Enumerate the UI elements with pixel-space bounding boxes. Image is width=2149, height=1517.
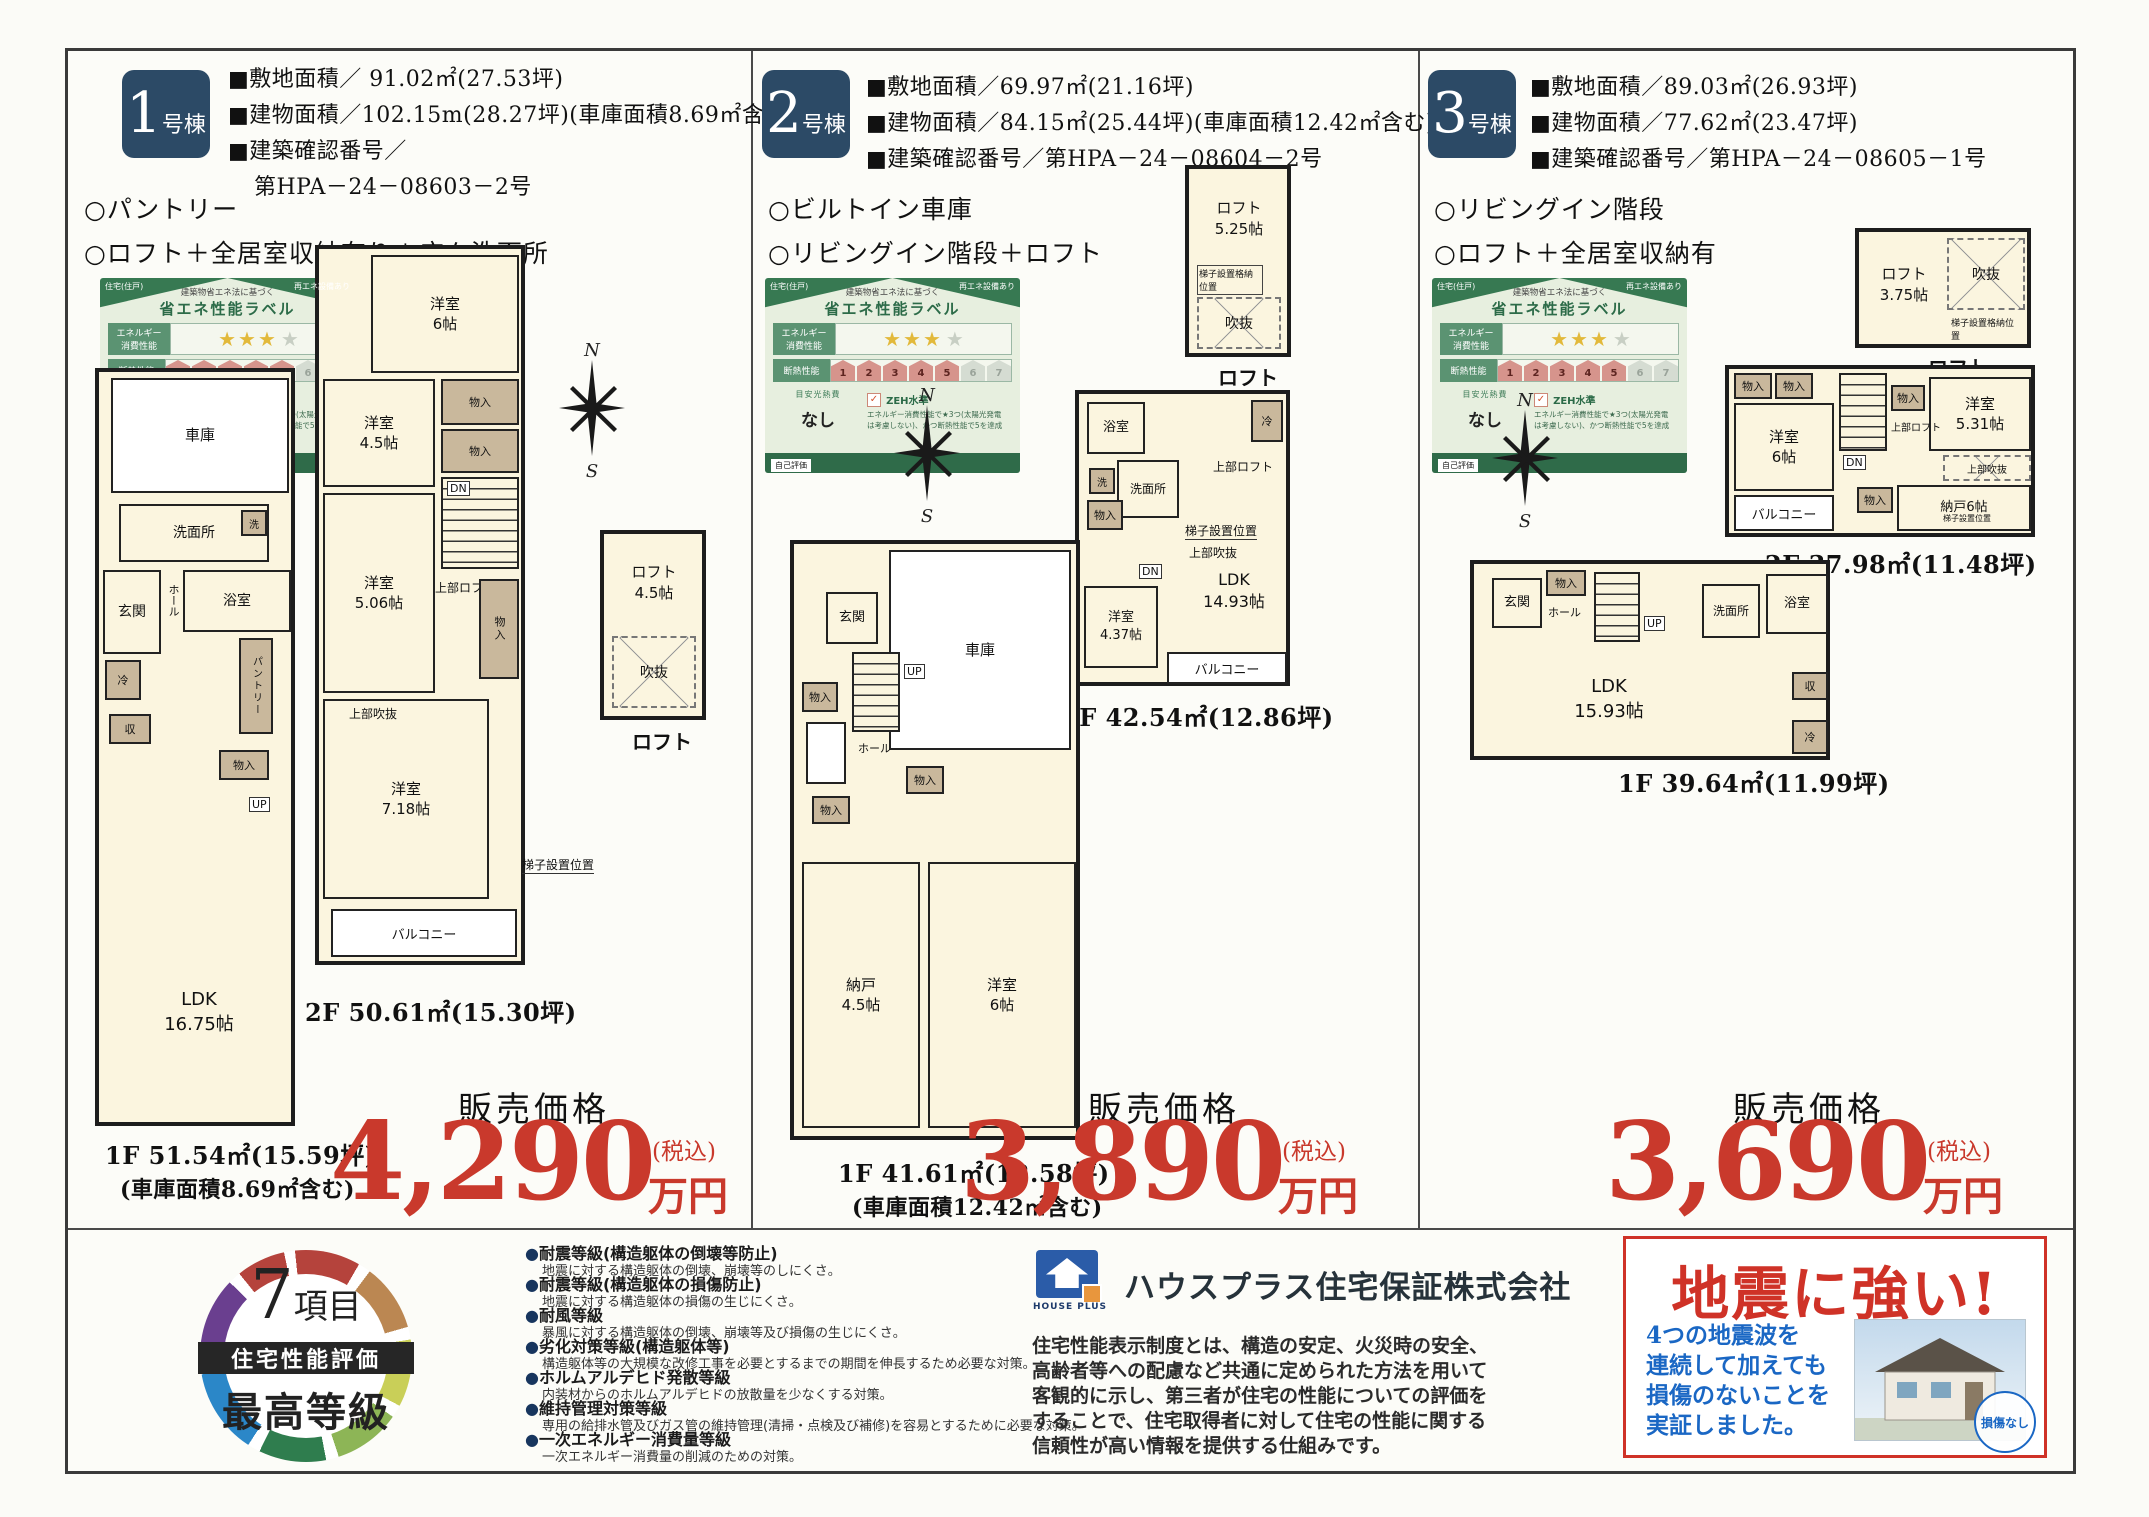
energy-row2-label: 断熱性能 [1440, 359, 1497, 382]
badge-line1: 7項目 [200, 1262, 412, 1330]
footer-divider [68, 1228, 2073, 1230]
ladder-position-label: 梯子設置位置 [1185, 522, 1257, 540]
room-yoshitsu: 洋室 5.06帖 [323, 493, 435, 693]
closet: 物入 [441, 379, 519, 425]
void-area: 吹抜 [1197, 297, 1281, 349]
b1-2f-plan: 洋室 6帖 洋室 4.5帖 物入 物入 DN 洋室 5.06帖 上部ロフト 物入… [315, 245, 525, 965]
star-icon: ★★★ [883, 327, 943, 351]
room-yoshitsu: 洋室 4.5帖 [323, 379, 435, 487]
b3-2f-plan: 物入 物入 洋室 6帖 DN 物入 洋室 5.31帖 上部ロフト 上部吹抜 納戸… [1725, 365, 2035, 537]
room-yoshitsu: 洋室 6帖 [371, 255, 519, 373]
closet: 物入 [479, 579, 519, 679]
room-bath: 浴室 [183, 570, 291, 632]
bullet-icon: ● [525, 1368, 539, 1387]
feature-line: ○リビングイン階段＋ロフト [768, 232, 1103, 276]
energy-row1-label: エネルギー 消費性能 [773, 323, 835, 355]
room-ldk: LDK 16.75帖 [149, 972, 249, 1052]
building-3-badge: 3 号棟 [1428, 70, 1516, 158]
balcony: バルコニー [1734, 495, 1834, 531]
energy-tab-right: 再エネ設備あり [959, 281, 1015, 292]
room-senmenjo: 洗面所 [1117, 460, 1179, 518]
stairs-down [1839, 373, 1887, 451]
closet: 物入 [1857, 487, 1893, 513]
feature-line: ○ロフト＋全居室収納有 [1434, 232, 1717, 276]
building-3-specs: ■敷地面積／89.03㎡(26.93坪) ■建物面積／77.62㎡(23.47坪… [1530, 70, 1987, 178]
b1-2f-caption: 2F 50.61㎡(15.30坪) [305, 993, 577, 1028]
building-3-suffix: 号棟 [1468, 107, 1512, 139]
closet: 物入 [441, 429, 519, 473]
fridge: 冷 [105, 660, 141, 700]
up-label: UP [249, 797, 270, 812]
ladder-position-label: 梯子設置位置 [522, 856, 594, 874]
room-loft: ロフト 3.75帖 [1869, 250, 1939, 320]
compass-icon: N S [545, 340, 640, 480]
stairs-up [1594, 572, 1640, 642]
insulation-level-icon: 2 [857, 360, 881, 381]
feature-line: ○リビングイン階段 [1434, 188, 1717, 232]
star-icon: ★★★ [1550, 327, 1610, 351]
price-unit: 万円 [648, 1164, 728, 1222]
energy-title: 省エネ性能ラベル [1432, 298, 1687, 319]
ladder-storage-label: 梯子設置格納位置 [1197, 265, 1263, 295]
price-tax: (税込) [1927, 1132, 1991, 1166]
dn-label: DN [1139, 564, 1162, 579]
b1-loft-caption: ロフト [632, 726, 692, 755]
insulation-level-icon: 4 [1576, 360, 1600, 381]
spec-line: ■建築確認番号／ [228, 134, 796, 170]
energy-tab-left: 住宅(住戸) [1437, 281, 1475, 292]
spec-line: ■敷地面積／69.97㎡(21.16坪) [866, 70, 1435, 106]
void-area: 吹抜 [612, 636, 696, 708]
insulation-level-icon: 3 [1550, 360, 1574, 381]
energy-cost-value: なし [773, 406, 863, 431]
insulation-level-icon: 7 [1654, 360, 1678, 381]
room-yoshitsu: 洋室 6帖 [928, 862, 1076, 1128]
feature-line: ○パントリー [84, 188, 549, 232]
up-label: UP [1644, 616, 1665, 631]
building-3-features: ○リビングイン階段 ○ロフト＋全居室収納有 [1434, 188, 1717, 276]
column-divider-1 [751, 51, 753, 1228]
checkbox-icon: ✓ [867, 393, 881, 407]
ladder-position-label: 梯子設置位置 [1943, 513, 1991, 524]
room-loft: ロフト 5.25帖 [1197, 187, 1281, 251]
washer: 洗 [241, 510, 267, 536]
upper-loft-label: 上部ロフト [1891, 419, 1941, 434]
star-off-icon: ★ [281, 327, 299, 351]
closet-pantry: パントリー [239, 638, 273, 734]
badge-number: 7 [250, 1256, 293, 1335]
bullet-icon: ● [525, 1275, 539, 1294]
insulation-level-icon: 2 [1524, 360, 1548, 381]
svg-text:S: S [921, 506, 933, 525]
b2-2f-caption: 2F 42.54㎡(12.86坪) [1062, 698, 1334, 733]
price-amount: 3,890 [960, 1108, 1283, 1216]
svg-text:S: S [1519, 511, 1531, 530]
b2-2f-plan: 浴室 冷 洗面所 洗 上部ロフト 物入 梯子設置位置 上部吹抜 LDK 14.9… [1075, 390, 1290, 686]
insulation-level-icon: 1 [1498, 360, 1522, 381]
svg-text:S: S [586, 461, 598, 480]
building-2-suffix: 号棟 [802, 107, 846, 139]
spec-line: ■建築確認番号／第HPA－24－08604－2号 [866, 142, 1435, 178]
closet: 物入 [219, 750, 269, 780]
hall-label: ホール [165, 584, 181, 617]
building-1-badge: 1 号棟 [122, 70, 210, 158]
svg-text:N: N [583, 340, 601, 361]
up-label: UP [904, 664, 925, 679]
room-senmenjo: 洗面所 [1702, 584, 1760, 638]
room-nando: 納戸 4.5帖 [802, 862, 920, 1128]
upper-loft-label: 上部ロフト [1213, 458, 1273, 475]
insulation-level-icon: 4 [909, 360, 933, 381]
quake-box: 地震に強い! 4つの地震波を 連続して加えても 損傷のないことを 実証しました。… [1623, 1236, 2047, 1458]
flyer-page: 1 号棟 ■敷地面積／ 91.02㎡(27.53坪) ■建物面積／102.15m… [0, 0, 2149, 1517]
room-bath: 浴室 [1766, 574, 1828, 634]
logo-orange-square [1082, 1284, 1102, 1304]
closet: 物入 [812, 796, 850, 824]
upper-void-area: 上部吹抜 [1943, 455, 2031, 481]
building-2-number: 2 [766, 86, 802, 142]
no-damage-badge: 損傷なし [1974, 1391, 2036, 1453]
insulation-level-icon: 6 [961, 360, 985, 381]
spec-line: ■敷地面積／ 91.02㎡(27.53坪) [228, 62, 796, 98]
energy-row2-label: 断熱性能 [773, 359, 830, 382]
building-3-number: 3 [1432, 86, 1468, 142]
room-garage: 車庫 [889, 550, 1071, 750]
room-nando: 納戸6帖 [1897, 485, 2031, 531]
hall-label: ホール [858, 740, 891, 756]
hall-label: ホール [1548, 604, 1581, 620]
price-amount: 3,690 [1605, 1108, 1928, 1216]
balcony: バルコニー [1167, 652, 1287, 684]
room-loft: ロフト 4.5帖 [612, 544, 696, 622]
building-2-badge: 2 号棟 [762, 70, 850, 158]
price-tax: (税込) [652, 1132, 716, 1166]
balcony: バルコニー [331, 909, 517, 957]
b2-loft-plan: ロフト 5.25帖 梯子設置格納位置 吹抜 [1185, 165, 1291, 357]
spec-line: ■敷地面積／89.03㎡(26.93坪) [1530, 70, 1987, 106]
logo-text: HOUSE PLUS [1030, 1302, 1110, 1312]
upper-void-label: 上部吹抜 [1189, 544, 1237, 561]
spec-line: ■建物面積／102.15m(28.27坪)(車庫面積8.69㎡含む) [228, 98, 796, 134]
quake-body: 4つの地震波を 連続して加えても 損傷のないことを 実証しました。 [1646, 1321, 1830, 1441]
energy-cost-label: 目安光熱費 [773, 389, 863, 400]
performance-badge: 7項目 住宅性能評価 最高等級 [200, 1250, 412, 1462]
closet: 物入 [1087, 500, 1123, 530]
bullet-icon: ● [525, 1244, 539, 1263]
room-yoshitsu: 洋室 7.18帖 [323, 699, 489, 899]
energy-tab-right: 再エネ設備あり [1626, 281, 1682, 292]
fridge: 冷 [1792, 720, 1828, 754]
compass-icon: N S [1478, 390, 1573, 530]
closet: 物入 [1775, 373, 1813, 399]
closet: 物入 [1891, 385, 1925, 411]
building-1-number: 1 [126, 86, 162, 142]
price-unit: 万円 [1923, 1164, 2003, 1222]
b3-loft-plan: ロフト 3.75帖 吹抜 梯子設置格納位置 [1855, 228, 2031, 348]
spec-line: ■建物面積／84.15㎡(25.44坪)(車庫面積12.42㎡含む) [866, 106, 1435, 142]
room-genkan: 玄関 [1492, 578, 1542, 628]
building-2-specs: ■敷地面積／69.97㎡(21.16坪) ■建物面積／84.15㎡(25.44坪… [866, 70, 1435, 178]
price-tax: (税込) [1282, 1132, 1346, 1166]
dn-label: DN [447, 481, 470, 496]
room-ldk: LDK 15.93帖 [1554, 664, 1664, 734]
storage: 収 [109, 714, 151, 744]
feature-line: ○ビルトイン車庫 [768, 188, 1103, 232]
badge-number-suffix: 項目 [294, 1287, 362, 1327]
void-area: 吹抜 [1947, 238, 2025, 310]
room-ldk: LDK 14.93帖 [1184, 562, 1284, 620]
building-2-features: ○ビルトイン車庫 ○リビングイン階段＋ロフト [768, 188, 1103, 276]
room-yoshitsu: 洋室 5.31帖 [1929, 377, 2031, 451]
insulation-level-icon: 3 [883, 360, 907, 381]
building-1-specs: ■敷地面積／ 91.02㎡(27.53坪) ■建物面積／102.15m(28.2… [228, 62, 796, 206]
b2-1f-plan: 玄関 車庫 UP ホール 物入 物入 物入 納戸 4.5帖 洋室 6帖 [790, 540, 1080, 1140]
energy-title: 省エネ性能ラベル [765, 298, 1020, 319]
insulation-level-icon: 6 [1628, 360, 1652, 381]
fridge: 冷 [1251, 400, 1283, 442]
closet: 物入 [802, 682, 838, 712]
energy-tab-right: 再エネ設備あり [294, 281, 350, 292]
storage: 収 [1792, 672, 1828, 700]
energy-row1-label: エネルギー 消費性能 [1440, 323, 1502, 355]
star-icon: ★★★ [218, 327, 278, 351]
room-garage: 車庫 [111, 378, 289, 493]
washer: 洗 [1089, 468, 1115, 494]
energy-tab-left: 住宅(住戸) [770, 281, 808, 292]
spec-line: ■建物面積／77.62㎡(23.47坪) [1530, 106, 1987, 142]
svg-text:N: N [918, 385, 936, 406]
compass-icon: N S [880, 385, 975, 525]
b3-1f-caption: 1F 39.64㎡(11.99坪) [1618, 764, 1890, 799]
insulation-level-icon: 5 [935, 360, 959, 381]
insulation-level-icon: 7 [987, 360, 1011, 381]
badge-grade: 最高等級 [200, 1380, 412, 1438]
star-off-icon: ★ [1613, 327, 1631, 351]
room-yoshitsu: 洋室 6帖 [1734, 403, 1834, 491]
self-eval-label: 自己評価 [1438, 459, 1478, 472]
upper-void-label: 上部吹抜 [349, 705, 397, 722]
column-divider-2 [1418, 51, 1420, 1228]
b3-1f-plan: 玄関 物入 ホール UP 洗面所 浴室 LDK 15.93帖 収 冷 [1470, 560, 1830, 760]
company-description: 住宅性能表示制度とは、構造の安定、火災時の安全、 高齢者等への配慮など共通に定め… [1032, 1334, 1502, 1459]
house-plus-logo: HOUSE PLUS [1030, 1250, 1110, 1316]
b1-1f-caption2: (車庫面積8.69㎡含む) [120, 1172, 355, 1204]
badge-band: 住宅性能評価 [198, 1342, 414, 1374]
room-yoshitsu: 洋室 4.37帖 [1084, 586, 1158, 668]
room-genkan: 玄関 [103, 570, 161, 654]
room-genkan: 玄関 [826, 592, 878, 644]
bullet-icon: ● [525, 1306, 539, 1325]
company-name: ハウスプラス住宅保証株式会社 [1124, 1262, 1571, 1307]
perf-item-desc: 一次エネルギー消費量の削減のための対策。 [542, 1446, 802, 1465]
bullet-icon: ● [525, 1430, 539, 1449]
star-off-icon: ★ [946, 327, 964, 351]
self-eval-label: 自己評価 [771, 459, 811, 472]
b1-loft-plan: ロフト 4.5帖 吹抜 [600, 530, 706, 720]
building-1-suffix: 号棟 [162, 107, 206, 139]
dn-label: DN [1843, 455, 1866, 470]
bullet-icon: ● [525, 1337, 539, 1356]
spec-line: ■建築確認番号／第HPA－24－08605－1号 [1530, 142, 1987, 178]
insulation-level-icon: 5 [1602, 360, 1626, 381]
b1-1f-plan: 車庫 洗面所 洗 玄関 ホール 浴室 パントリー 冷 収 物入 UP LDK 1… [95, 368, 295, 1126]
b2-loft-caption: ロフト [1218, 362, 1278, 391]
closet: 物入 [1546, 570, 1586, 596]
closet: 物入 [906, 766, 944, 794]
energy-row1-label: エネルギー 消費性能 [108, 323, 170, 355]
svg-text:N: N [1516, 390, 1534, 411]
room-toilet [806, 722, 846, 784]
ladder-storage-label: 梯子設置格納位置 [1951, 316, 2021, 342]
price-unit: 万円 [1278, 1164, 1358, 1222]
room-bath: 浴室 [1087, 402, 1145, 454]
price-amount: 4,290 [330, 1108, 653, 1216]
closet: 物入 [1734, 373, 1772, 399]
energy-tab-left: 住宅(住戸) [105, 281, 143, 292]
bullet-icon: ● [525, 1399, 539, 1418]
insulation-level-icon: 1 [831, 360, 855, 381]
stairs-up [852, 652, 900, 732]
